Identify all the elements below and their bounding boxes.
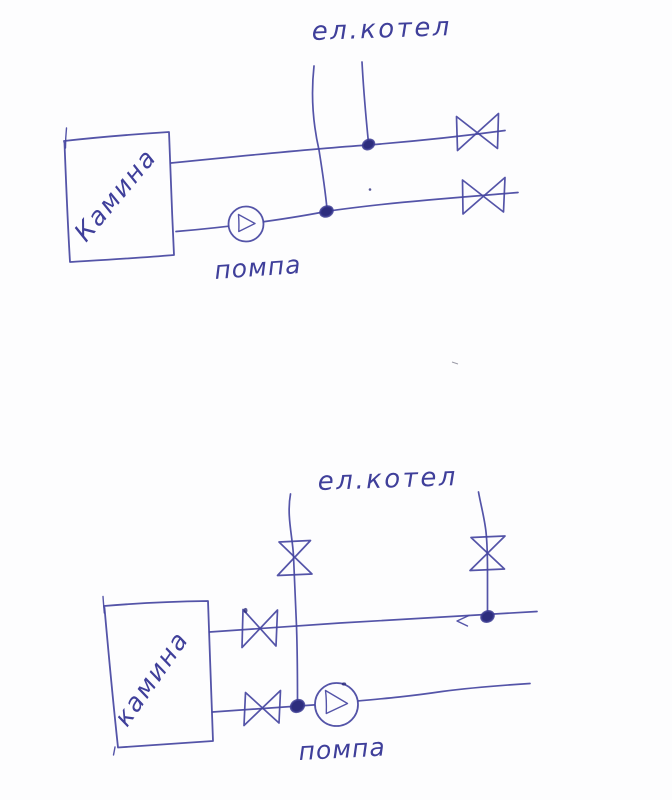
retrace-arrow-mark	[457, 616, 469, 627]
bottom-junction-dot-return	[289, 697, 307, 714]
hand-drawn-heating-schematic: ел.котел Камина помпа	[0, 0, 672, 800]
bottom-box-corner-overshoot	[103, 597, 104, 614]
top-diagram: ел.котел Камина помпа	[64, 12, 518, 285]
scanned-paper: ел.котел Камина помпа	[0, 0, 672, 800]
bottom-box-corner-tail	[114, 747, 116, 755]
top-return-pipe	[176, 193, 518, 232]
top-pump-label: помпа	[213, 250, 302, 285]
bottom-junction-dot-supply	[479, 609, 495, 624]
bottom-pump-label: помпа	[298, 732, 387, 766]
top-supply-pipe	[171, 131, 505, 164]
top-pump-icon	[229, 207, 264, 242]
top-boiler-label: ел.котел	[311, 12, 452, 47]
bottom-return-pipe	[213, 684, 531, 713]
bottom-diagram: ел.котел камина помпа	[103, 462, 537, 766]
top-junction-dot-supply	[361, 138, 376, 152]
bottom-pump-icon	[315, 682, 358, 726]
top-boiler-drop-right	[362, 62, 369, 143]
top-junction-dot-return	[319, 204, 335, 218]
ink-blot	[244, 608, 248, 613]
stray-ink-dot	[369, 188, 372, 191]
top-boiler-drop-left	[313, 66, 327, 209]
scanner-artifact-mark	[452, 362, 458, 364]
bottom-boiler-drop-left	[289, 494, 297, 703]
bottom-boiler-label: ел.котел	[317, 462, 458, 497]
